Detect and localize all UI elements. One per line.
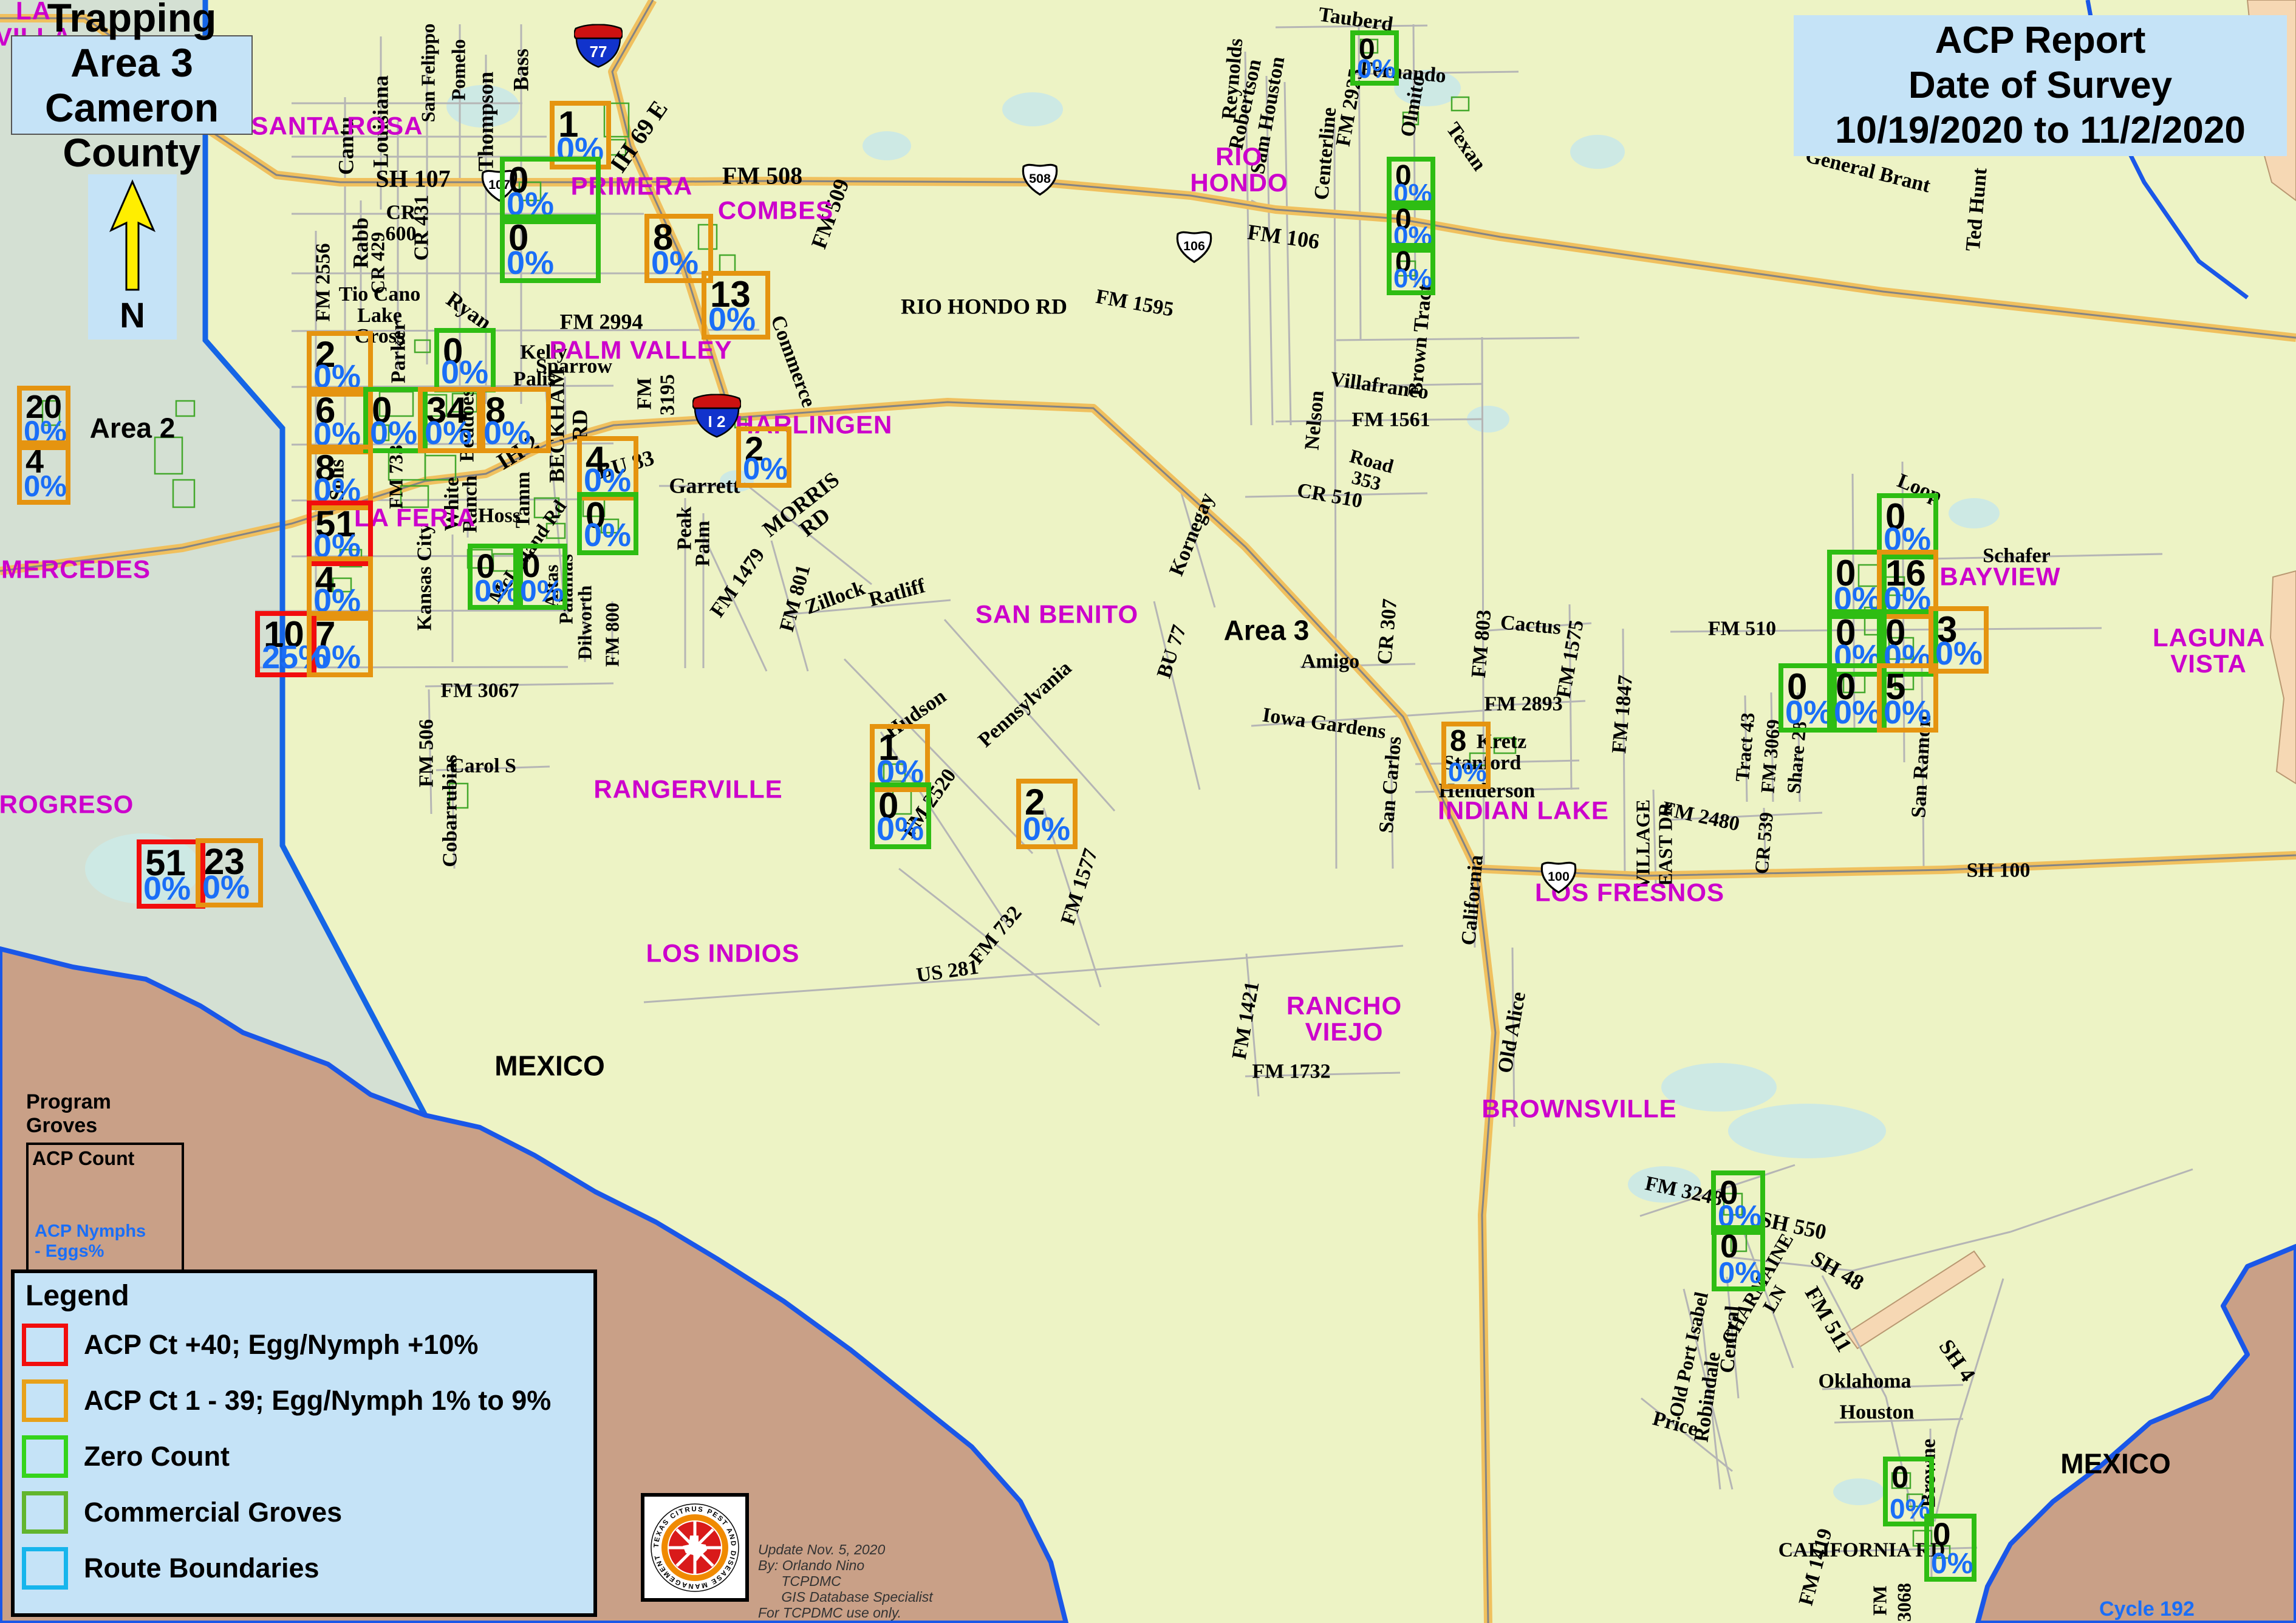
svg-text:508: 508 <box>1029 171 1051 186</box>
legend-title: Legend <box>26 1279 593 1313</box>
svg-text:I 2: I 2 <box>708 412 726 431</box>
legend-item: Zero Count <box>22 1433 593 1480</box>
acp-count-label: ACP Count <box>32 1147 134 1170</box>
trap-box-orange: 230% <box>196 838 263 907</box>
us-route-shield-106: 106 <box>1174 229 1214 267</box>
north-arrow-box: N <box>88 174 177 340</box>
egg-nymph-pct-value: 0% <box>651 244 699 282</box>
egg-nymph-pct-value: 0% <box>876 810 924 848</box>
trap-box-green: 00% <box>1924 1514 1977 1582</box>
legend-label: Zero Count <box>84 1441 230 1472</box>
trap-box-green: 00% <box>577 492 638 555</box>
trap-box-orange: 50% <box>1877 663 1938 733</box>
egg-nymph-pct-value: 0% <box>584 516 631 554</box>
egg-nymph-pct-value: 0% <box>1448 757 1487 788</box>
interstate-shield-77: 77 <box>574 24 623 71</box>
egg-nymph-pct-value: 0% <box>24 470 67 504</box>
trap-box-green: 00% <box>1387 243 1435 295</box>
egg-nymph-pct-value: 0% <box>1884 694 1931 731</box>
egg-nymph-pct-value: 0% <box>1357 54 1396 84</box>
report-line1: ACP Report <box>1794 18 2287 63</box>
egg-nymph-pct-value: 0% <box>474 573 519 609</box>
egg-nymph-pct-value: 0% <box>507 244 554 282</box>
svg-text:77: 77 <box>590 43 607 61</box>
us-route-shield-508: 508 <box>1020 162 1060 200</box>
svg-text:100: 100 <box>1548 869 1570 884</box>
legend-swatch <box>22 1324 68 1366</box>
north-label-glyph: N <box>120 296 145 335</box>
legend-item: ACP Ct +40; Egg/Nymph +10% <box>22 1321 593 1368</box>
legend-label: ACP Ct 1 - 39; Egg/Nymph 1% to 9% <box>84 1385 551 1416</box>
egg-nymph-pct-value: 0% <box>1935 635 1983 672</box>
legend-swatch <box>22 1547 68 1590</box>
trap-box-green: 00% <box>1350 30 1399 86</box>
legend: Legend ACP Ct +40; Egg/Nymph +10%ACP Ct … <box>11 1269 597 1617</box>
interstate-shield-I2: I 2 <box>692 394 741 441</box>
egg-nymph-pct-value: 0% <box>1393 264 1432 294</box>
trap-box-green: 00% <box>870 782 931 849</box>
egg-nymph-pct-value: 0% <box>1834 694 1881 731</box>
egg-nymph-pct-value: 0% <box>441 354 488 391</box>
egg-nymph-pct-value: 0% <box>483 414 531 452</box>
acp-count-value: 0 <box>1891 1459 1908 1495</box>
program-groves-title: Program Groves <box>26 1090 184 1138</box>
legend-label: Commercial Groves <box>84 1497 342 1528</box>
legend-swatch <box>22 1379 68 1422</box>
egg-nymph-pct-value: 0% <box>708 301 756 338</box>
map-title-line1: Trapping Area 3 <box>12 0 251 85</box>
cycle-label: Cycle 192 <box>2099 1597 2195 1621</box>
map-canvas: SH 107FM 508FM 509IH 69 ELouisianaSan Fe… <box>0 0 2296 1623</box>
trap-box-orange: 70% <box>307 611 373 677</box>
trap-box-green: 00% <box>513 544 567 610</box>
report-line3: 10/19/2020 to 11/2/2020 <box>1794 108 2287 153</box>
trap-box-green: 00% <box>1712 1225 1765 1291</box>
trap-box-orange: 40% <box>577 436 638 501</box>
legend-item: Commercial Groves <box>22 1489 593 1536</box>
egg-nymph-pct-value: 0% <box>1023 810 1070 848</box>
program-groves-key-box: ACP Count ACP Nymphs - Eggs% <box>26 1143 184 1273</box>
credits-text: Update Nov. 5, 2020 By: Orlando Nino TCP… <box>758 1542 933 1621</box>
north-arrow-icon <box>111 182 154 290</box>
acp-count-value: 8 <box>1450 724 1466 758</box>
map-title-line2: Cameron County <box>12 85 251 175</box>
egg-nymph-pct-value: 0% <box>1931 1547 1973 1580</box>
report-title-box: ACP Report Date of Survey 10/19/2020 to … <box>1794 15 2287 156</box>
tcpdmc-seal: TEXAS CITRUS PEST AND DISEASE MANAGEMENT… <box>641 1493 749 1602</box>
egg-nymph-pct-value: 0% <box>143 870 191 907</box>
trap-box-green: 00% <box>500 214 601 283</box>
egg-nymph-pct-value: 0% <box>743 451 788 487</box>
legend-label: ACP Ct +40; Egg/Nymph +10% <box>84 1329 478 1361</box>
trap-box-orange: 20% <box>1016 779 1078 849</box>
legend-swatch <box>22 1435 68 1478</box>
legend-item: ACP Ct 1 - 39; Egg/Nymph 1% to 9% <box>22 1377 593 1424</box>
egg-nymph-pct-value: 0% <box>1718 1256 1761 1290</box>
trap-box-orange: 20% <box>736 426 791 488</box>
egg-nymph-pct-value: 0% <box>370 414 417 452</box>
legend-label: Route Boundaries <box>84 1553 319 1584</box>
legend-item: Route Boundaries <box>22 1545 593 1592</box>
map-title-box: Trapping Area 3 Cameron County <box>11 35 253 135</box>
trap-box-orange: 80% <box>477 387 551 453</box>
us-route-shield-100: 100 <box>1539 859 1579 898</box>
legend-swatch <box>22 1491 68 1534</box>
acp-nymphs-label: ACP Nymphs - Eggs% <box>35 1222 146 1262</box>
trap-box-green: 00% <box>434 328 496 392</box>
egg-nymph-pct-value: 0% <box>1785 694 1833 731</box>
trap-box-orange: 40% <box>17 440 70 505</box>
trap-box-orange: 80% <box>1441 722 1491 789</box>
egg-nymph-pct-value: 0% <box>202 869 250 906</box>
egg-nymph-pct-value: 0% <box>520 573 564 609</box>
trap-box-orange: 340% <box>418 387 485 453</box>
report-line2: Date of Survey <box>1794 63 2287 108</box>
svg-text:106: 106 <box>1183 239 1205 253</box>
egg-nymph-pct-value: 0% <box>313 638 361 676</box>
egg-nymph-pct-value: 0% <box>425 414 472 452</box>
program-groves-panel: Program Groves ACP Count ACP Nymphs - Eg… <box>26 1090 184 1273</box>
trap-box-orange: 130% <box>702 271 770 340</box>
